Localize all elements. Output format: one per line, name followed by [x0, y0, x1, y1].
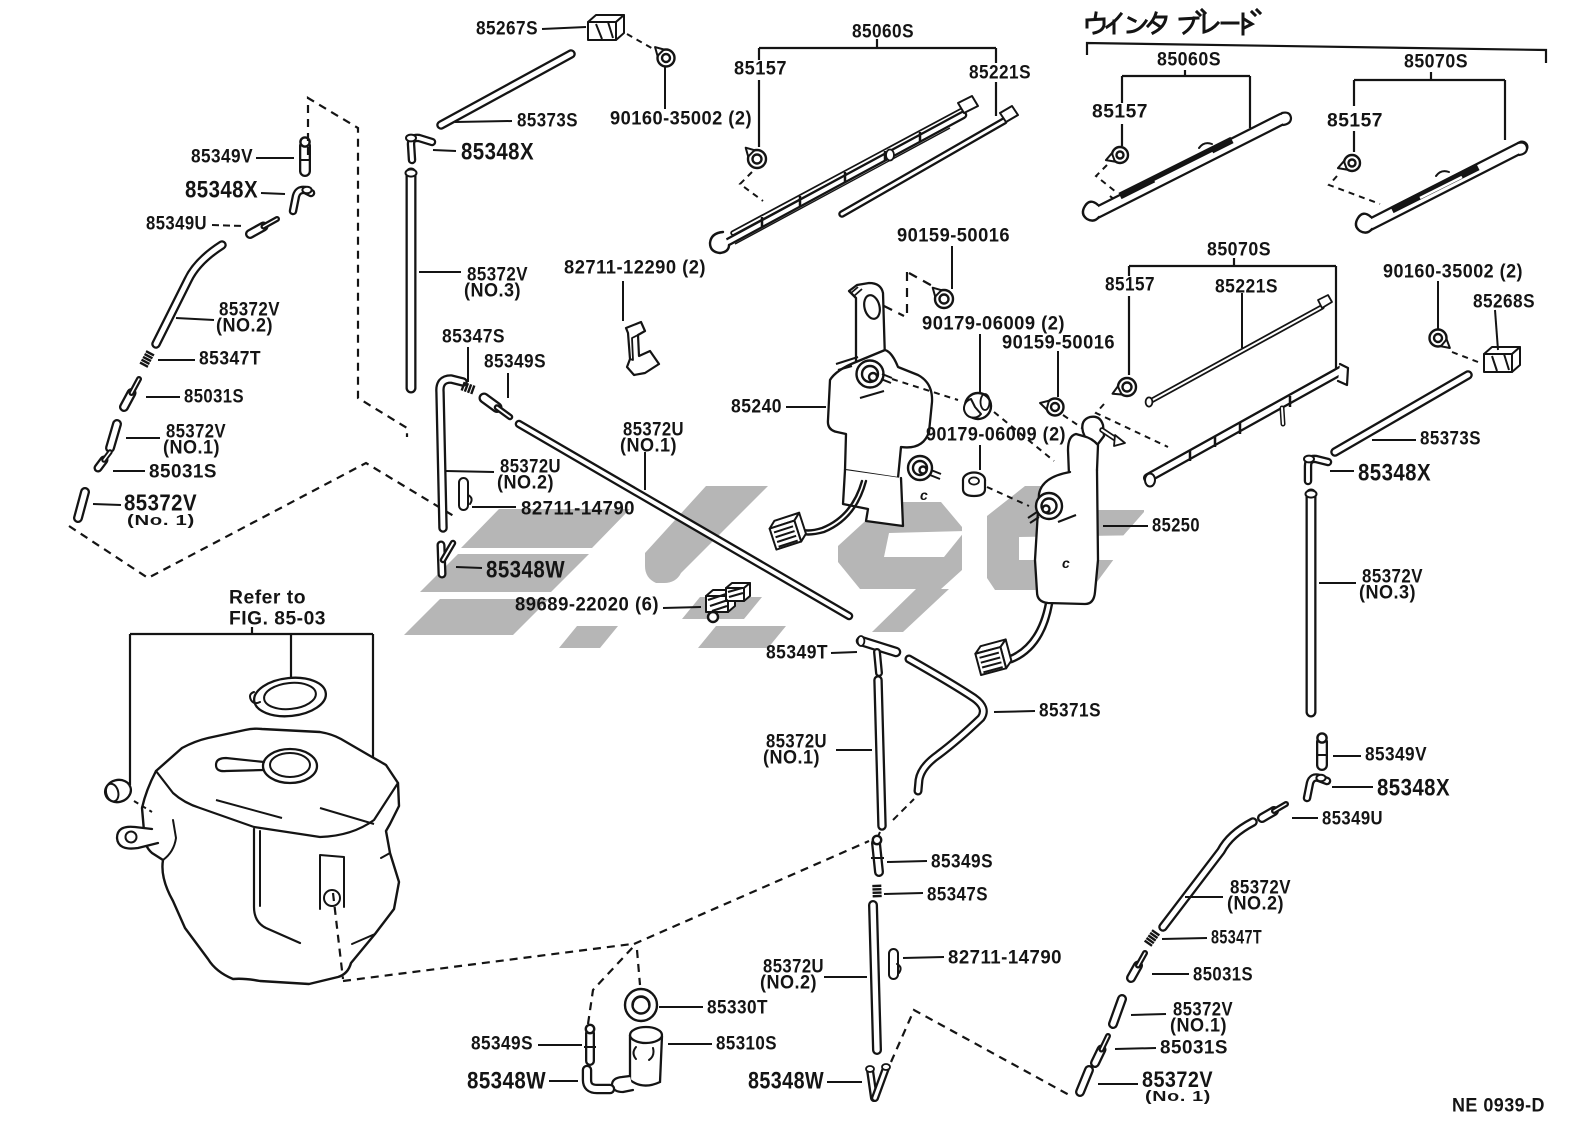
svg-text:c: c: [1062, 555, 1070, 571]
svg-text:(NO.3): (NO.3): [464, 281, 521, 302]
svg-text:85348W: 85348W: [748, 1067, 824, 1094]
svg-text:85031S: 85031S: [149, 462, 217, 483]
svg-text:85268S: 85268S: [1473, 292, 1535, 313]
svg-text:82711-12290 (2): 82711-12290 (2): [564, 258, 706, 279]
svg-text:90179-06009 (2): 90179-06009 (2): [922, 314, 1065, 335]
svg-text:85349S: 85349S: [484, 352, 546, 373]
svg-text:85349T: 85349T: [766, 643, 828, 664]
svg-text:85070S: 85070S: [1207, 240, 1271, 261]
svg-text:(NO.2): (NO.2): [760, 973, 817, 994]
svg-text:85240: 85240: [731, 397, 782, 418]
svg-text:85349V: 85349V: [191, 147, 253, 168]
svg-text:85221S: 85221S: [969, 63, 1031, 84]
svg-text:85031S: 85031S: [1160, 1038, 1228, 1059]
svg-text:85347S: 85347S: [927, 885, 988, 906]
svg-text:(NO.2): (NO.2): [216, 316, 273, 337]
svg-text:(NO.1): (NO.1): [163, 438, 220, 459]
svg-text:NE 0939-D: NE 0939-D: [1452, 1096, 1545, 1117]
svg-text:Refer to: Refer to: [229, 588, 306, 609]
svg-text:85349U: 85349U: [1322, 809, 1383, 830]
svg-text:c: c: [920, 487, 928, 503]
svg-text:85373S: 85373S: [1420, 429, 1481, 450]
svg-text:90179-06009 (2): 90179-06009 (2): [926, 425, 1066, 446]
svg-text:90159-50016: 90159-50016: [897, 226, 1010, 247]
svg-text:(No. 1): (No. 1): [1145, 1088, 1211, 1105]
svg-text:85330T: 85330T: [707, 998, 768, 1019]
svg-text:FIG. 85-03: FIG. 85-03: [229, 609, 326, 630]
svg-text:(NO.1): (NO.1): [1170, 1016, 1227, 1037]
svg-text:85348X: 85348X: [1358, 459, 1431, 486]
svg-text:(NO.3): (NO.3): [1359, 583, 1416, 604]
svg-text:(NO.1): (NO.1): [763, 748, 820, 769]
svg-text:85157: 85157: [1327, 111, 1383, 132]
svg-text:85349U: 85349U: [146, 214, 207, 235]
svg-text:85348X: 85348X: [1377, 774, 1450, 801]
svg-text:85347T: 85347T: [1211, 928, 1262, 949]
svg-text:90159-50016: 90159-50016: [1002, 333, 1115, 354]
svg-text:82711-14790: 82711-14790: [948, 948, 1062, 969]
svg-text:85267S: 85267S: [476, 19, 538, 40]
svg-text:(NO.1): (NO.1): [620, 436, 677, 457]
svg-text:82711-14790: 82711-14790: [521, 499, 635, 520]
svg-text:85349V: 85349V: [1365, 745, 1427, 766]
svg-text:85347T: 85347T: [199, 349, 261, 370]
svg-text:85157: 85157: [1092, 102, 1148, 123]
svg-text:85070S: 85070S: [1404, 52, 1468, 73]
svg-text:85157: 85157: [1105, 275, 1155, 296]
svg-text:90160-35002 (2): 90160-35002 (2): [610, 109, 752, 130]
svg-text:85031S: 85031S: [184, 387, 244, 408]
svg-text:(NO.2): (NO.2): [497, 473, 554, 494]
svg-text:85060S: 85060S: [852, 22, 914, 43]
svg-text:85157: 85157: [734, 59, 787, 80]
svg-text:85348W: 85348W: [486, 556, 565, 583]
svg-text:85373S: 85373S: [517, 111, 578, 132]
svg-text:89689-22020 (6): 89689-22020 (6): [515, 595, 659, 616]
svg-text:85348X: 85348X: [185, 176, 258, 203]
svg-text:90160-35002 (2): 90160-35002 (2): [1383, 262, 1523, 283]
svg-text:85348X: 85348X: [461, 138, 534, 165]
svg-text:85348W: 85348W: [467, 1067, 546, 1094]
svg-text:85371S: 85371S: [1039, 701, 1101, 722]
svg-text:85349S: 85349S: [931, 852, 993, 873]
svg-text:85347S: 85347S: [442, 327, 505, 348]
svg-text:(No. 1): (No. 1): [127, 512, 195, 529]
svg-text:(NO.2): (NO.2): [1227, 894, 1284, 915]
svg-text:85221S: 85221S: [1215, 277, 1278, 298]
svg-text:85310S: 85310S: [716, 1034, 777, 1055]
svg-text:85250: 85250: [1152, 516, 1200, 537]
svg-text:85349S: 85349S: [471, 1034, 533, 1055]
svg-text:85031S: 85031S: [1193, 965, 1253, 986]
svg-text:85060S: 85060S: [1157, 50, 1221, 71]
